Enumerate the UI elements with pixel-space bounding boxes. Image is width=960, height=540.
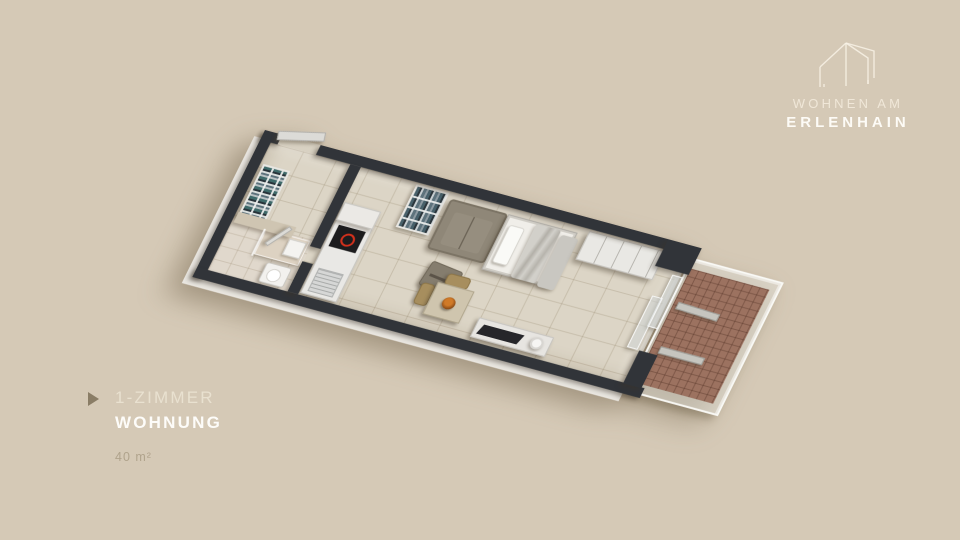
- sofa-cushions: [439, 212, 493, 254]
- entrance-door: [277, 131, 327, 142]
- caption-line1: 1-ZIMMER: [115, 388, 222, 408]
- brand-name-bottom: ERLENHAIN: [770, 114, 926, 131]
- play-arrow-icon: [88, 392, 99, 406]
- presentation-slide: WOHNEN AM ERLENHAIN: [0, 0, 960, 540]
- house-outline-icon: [810, 34, 886, 90]
- apartment-unit: [192, 130, 701, 395]
- caption-line2: WOHNUNG: [115, 413, 222, 433]
- slide-caption: 1-ZIMMER WOHNUNG 40 m²: [88, 388, 222, 464]
- brand-name-top: WOHNEN AM: [770, 96, 926, 111]
- brand-lockup: WOHNEN AM ERLENHAIN: [770, 34, 926, 131]
- caption-area: 40 m²: [115, 450, 222, 464]
